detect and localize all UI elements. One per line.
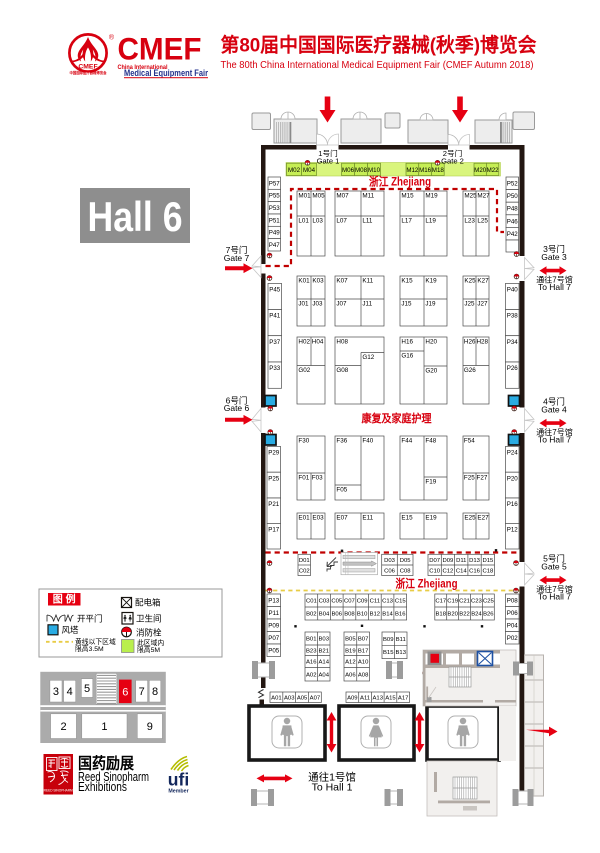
svg-text:B26: B26 — [483, 612, 494, 618]
svg-text:9: 9 — [147, 721, 153, 733]
svg-text:M15: M15 — [401, 192, 414, 199]
svg-text:2: 2 — [60, 721, 66, 733]
svg-text:P16: P16 — [507, 501, 519, 508]
svg-text:M20: M20 — [474, 167, 487, 174]
svg-text:E27: E27 — [477, 514, 489, 521]
svg-text:G16: G16 — [401, 352, 413, 359]
svg-text:配电箱: 配电箱 — [135, 598, 161, 608]
svg-text:C02: C02 — [299, 568, 310, 574]
svg-text:P38: P38 — [507, 313, 519, 320]
svg-text:M04: M04 — [303, 167, 316, 174]
svg-text:P04: P04 — [507, 622, 519, 629]
svg-text:B03: B03 — [319, 637, 330, 643]
svg-text:B12: B12 — [370, 612, 380, 618]
svg-text:F05: F05 — [336, 486, 347, 493]
svg-text:B04: B04 — [319, 612, 330, 618]
svg-text:K03: K03 — [312, 277, 324, 284]
svg-text:Member: Member — [168, 788, 188, 794]
svg-text:L11: L11 — [362, 217, 373, 224]
svg-text:F25: F25 — [464, 474, 475, 481]
svg-text:H04: H04 — [312, 338, 324, 345]
svg-text:H16: H16 — [401, 338, 413, 345]
svg-text:B22: B22 — [459, 612, 469, 618]
svg-text:4: 4 — [67, 686, 73, 698]
svg-text:K07: K07 — [336, 277, 348, 284]
svg-text:C16: C16 — [469, 568, 481, 574]
svg-text:浙江 Zhejiang: 浙江 Zhejiang — [369, 175, 431, 189]
svg-text:P12: P12 — [507, 527, 519, 534]
svg-text:To Hall 7: To Hall 7 — [538, 591, 571, 601]
svg-text:M06: M06 — [342, 167, 355, 174]
svg-text:B19: B19 — [345, 648, 355, 654]
svg-text:P52: P52 — [507, 181, 519, 188]
svg-text:P06: P06 — [507, 610, 519, 617]
svg-text:E11: E11 — [362, 514, 373, 521]
svg-text:M08: M08 — [355, 167, 368, 174]
svg-text:J19: J19 — [425, 300, 436, 307]
svg-text:Gate 7: Gate 7 — [224, 253, 250, 263]
svg-text:M05: M05 — [312, 192, 325, 199]
svg-text:P41: P41 — [269, 313, 281, 320]
svg-text:Gate 3: Gate 3 — [541, 252, 567, 262]
svg-text:Gate 6: Gate 6 — [224, 403, 250, 413]
svg-text:D09: D09 — [443, 558, 454, 564]
svg-text:C23: C23 — [471, 599, 483, 605]
svg-text:J07: J07 — [336, 300, 347, 307]
svg-text:J03: J03 — [312, 300, 323, 307]
svg-text:A05: A05 — [297, 695, 308, 701]
svg-text:C03: C03 — [319, 599, 331, 605]
svg-text:F44: F44 — [401, 437, 412, 444]
svg-text:CMEF: CMEF — [78, 64, 97, 71]
svg-text:5: 5 — [84, 683, 90, 695]
svg-text:图 例: 图 例 — [53, 593, 76, 606]
svg-text:REED SINOPHARM: REED SINOPHARM — [44, 788, 73, 792]
svg-text:A15: A15 — [385, 695, 396, 701]
svg-text:A08: A08 — [358, 672, 369, 678]
svg-text:C15: C15 — [395, 599, 407, 605]
svg-text:P11: P11 — [268, 610, 279, 617]
svg-text:H20: H20 — [425, 338, 437, 345]
svg-text:G26: G26 — [464, 367, 476, 374]
svg-text:A12: A12 — [345, 660, 355, 666]
svg-text:A06: A06 — [345, 672, 356, 678]
svg-text:J25: J25 — [464, 300, 475, 307]
svg-text:开平门: 开平门 — [77, 614, 103, 624]
svg-text:C01: C01 — [306, 599, 317, 605]
svg-text:J01: J01 — [298, 300, 309, 307]
svg-text:K25: K25 — [464, 277, 476, 284]
svg-text:L01: L01 — [298, 217, 309, 224]
svg-text:7: 7 — [139, 686, 145, 698]
svg-text:The 80th China International M: The 80th China International Medical Equ… — [221, 60, 534, 71]
svg-text:M12: M12 — [406, 167, 419, 174]
svg-text:B01: B01 — [306, 637, 316, 643]
svg-text:D01: D01 — [299, 558, 310, 564]
svg-text:C13: C13 — [382, 599, 394, 605]
svg-text:P08: P08 — [507, 597, 519, 604]
svg-text:M02: M02 — [288, 167, 301, 174]
svg-text:H28: H28 — [477, 338, 489, 345]
svg-text:P21: P21 — [268, 501, 280, 508]
svg-text:A04: A04 — [319, 672, 330, 678]
svg-text:A02: A02 — [306, 672, 316, 678]
svg-text:F30: F30 — [298, 437, 309, 444]
svg-text:A07: A07 — [310, 695, 320, 701]
svg-text:Gate 5: Gate 5 — [541, 561, 567, 571]
svg-text:B06: B06 — [332, 612, 343, 618]
svg-text:To Hall 1: To Hall 1 — [312, 781, 353, 793]
svg-text:L23: L23 — [464, 217, 475, 224]
svg-text:B02: B02 — [306, 612, 316, 618]
svg-text:C19: C19 — [447, 599, 458, 605]
svg-text:M18: M18 — [432, 167, 445, 174]
svg-text:B18: B18 — [436, 612, 447, 618]
svg-text:G02: G02 — [298, 367, 310, 374]
svg-text:B23: B23 — [306, 648, 317, 654]
svg-text:K19: K19 — [425, 277, 437, 284]
svg-text:A14: A14 — [319, 660, 330, 666]
svg-text:Gate 4: Gate 4 — [541, 404, 567, 414]
svg-text:E01: E01 — [298, 514, 310, 521]
svg-text:B10: B10 — [357, 612, 368, 618]
svg-text:B09: B09 — [383, 637, 393, 643]
svg-text:B13: B13 — [396, 650, 407, 656]
svg-text:A11: A11 — [360, 695, 370, 701]
svg-text:8: 8 — [152, 686, 158, 698]
svg-text:P09: P09 — [268, 622, 280, 629]
svg-text:B05: B05 — [345, 637, 356, 643]
svg-text:卫生间: 卫生间 — [136, 614, 162, 624]
svg-text:Gate 1: Gate 1 — [317, 156, 340, 165]
svg-text:B24: B24 — [471, 612, 482, 618]
svg-text:D03: D03 — [384, 558, 396, 564]
svg-text:P13: P13 — [268, 597, 280, 604]
svg-text:P45: P45 — [269, 287, 281, 294]
svg-text:B17: B17 — [358, 648, 368, 654]
svg-text:C21: C21 — [459, 599, 470, 605]
svg-text:B21: B21 — [319, 648, 329, 654]
svg-text:A01: A01 — [271, 695, 281, 701]
svg-text:To Hall 7: To Hall 7 — [538, 282, 571, 292]
svg-text:L03: L03 — [312, 217, 323, 224]
svg-text:A17: A17 — [398, 695, 408, 701]
svg-text:M27: M27 — [477, 192, 490, 199]
svg-text:J11: J11 — [362, 300, 372, 307]
svg-text:3: 3 — [53, 686, 59, 698]
svg-text:F40: F40 — [362, 437, 373, 444]
svg-text:M25: M25 — [464, 192, 477, 199]
svg-text:P49: P49 — [269, 230, 281, 237]
svg-text:P07: P07 — [268, 635, 280, 642]
svg-text:P26: P26 — [507, 365, 519, 372]
svg-text:F01: F01 — [298, 474, 309, 481]
svg-text:B15: B15 — [383, 650, 394, 656]
svg-text:L17: L17 — [401, 217, 412, 224]
svg-text:F54: F54 — [464, 437, 475, 444]
svg-text:C17: C17 — [435, 599, 446, 605]
svg-text:P20: P20 — [507, 475, 519, 482]
svg-text:第80届中国国际医疗器械(秋季)博览会: 第80届中国国际医疗器械(秋季)博览会 — [221, 34, 537, 57]
svg-text:M01: M01 — [298, 192, 311, 199]
svg-text:D05: D05 — [400, 558, 412, 564]
svg-text:M07: M07 — [336, 192, 349, 199]
svg-text:ufi: ufi — [168, 770, 189, 790]
svg-text:Medical Equipment Fair: Medical Equipment Fair — [124, 68, 208, 78]
svg-text:C06: C06 — [384, 568, 396, 574]
svg-text:P24: P24 — [507, 450, 519, 457]
svg-text:J15: J15 — [401, 300, 412, 307]
svg-text:D15: D15 — [482, 558, 494, 564]
svg-text:1: 1 — [101, 721, 107, 733]
svg-text:P47: P47 — [269, 242, 281, 249]
svg-text:C05: C05 — [331, 599, 343, 605]
svg-text:K15: K15 — [401, 277, 413, 284]
svg-text:消防栓: 消防栓 — [136, 628, 162, 638]
svg-text:CMEF: CMEF — [118, 31, 202, 67]
svg-text:A03: A03 — [284, 695, 295, 701]
svg-text:B20: B20 — [447, 612, 458, 618]
svg-text:P55: P55 — [269, 193, 281, 200]
svg-text:M10: M10 — [368, 167, 381, 174]
svg-text:E25: E25 — [464, 514, 476, 521]
svg-text:F19: F19 — [425, 478, 436, 485]
svg-text:E15: E15 — [401, 514, 413, 521]
svg-text:C12: C12 — [443, 568, 454, 574]
svg-text:G20: G20 — [425, 367, 437, 374]
svg-text:B16: B16 — [395, 612, 406, 618]
svg-text:F27: F27 — [477, 474, 488, 481]
svg-text:P51: P51 — [269, 217, 281, 224]
svg-text:P53: P53 — [269, 205, 281, 212]
svg-text:G08: G08 — [336, 367, 348, 374]
svg-text:F36: F36 — [336, 437, 347, 444]
svg-text:H02: H02 — [298, 338, 310, 345]
svg-text:6: 6 — [122, 686, 128, 698]
svg-text:K27: K27 — [477, 277, 489, 284]
svg-text:B14: B14 — [382, 612, 393, 618]
svg-text:M19: M19 — [425, 192, 438, 199]
svg-text:E07: E07 — [336, 514, 348, 521]
svg-text:C09: C09 — [357, 599, 368, 605]
svg-text:P57: P57 — [269, 180, 281, 187]
svg-text:F03: F03 — [312, 474, 323, 481]
svg-text:C25: C25 — [483, 599, 495, 605]
svg-text:P42: P42 — [507, 231, 519, 238]
svg-text:P02: P02 — [507, 635, 519, 642]
svg-text:D07: D07 — [429, 558, 440, 564]
svg-text:Gate 2: Gate 2 — [441, 156, 464, 165]
svg-text:L19: L19 — [425, 217, 436, 224]
svg-text:A10: A10 — [358, 660, 369, 666]
svg-text:C10: C10 — [429, 568, 441, 574]
svg-text:L25: L25 — [477, 217, 488, 224]
svg-text:To Hall 7: To Hall 7 — [538, 434, 571, 444]
svg-text:B08: B08 — [344, 612, 355, 618]
svg-text:P37: P37 — [269, 339, 281, 346]
svg-text:P50: P50 — [507, 193, 519, 200]
svg-text:P17: P17 — [268, 527, 280, 534]
svg-text:此区域内: 此区域内 — [137, 638, 164, 647]
svg-text:®: ® — [109, 34, 115, 42]
svg-text:黄线以下区域: 黄线以下区域 — [75, 637, 116, 646]
svg-text:P40: P40 — [507, 287, 519, 294]
svg-text:A09: A09 — [347, 695, 357, 701]
svg-text:H08: H08 — [336, 338, 348, 345]
svg-text:C07: C07 — [344, 599, 355, 605]
svg-text:H26: H26 — [464, 338, 476, 345]
svg-text:P34: P34 — [507, 339, 519, 346]
svg-text:风塔: 风塔 — [62, 625, 80, 635]
svg-text:A16: A16 — [306, 660, 317, 666]
svg-text:C18: C18 — [482, 568, 494, 574]
svg-text:M16: M16 — [419, 167, 432, 174]
svg-text:C14: C14 — [456, 568, 468, 574]
svg-text:B11: B11 — [396, 637, 406, 643]
svg-text:F48: F48 — [425, 437, 436, 444]
svg-text:E03: E03 — [312, 514, 324, 521]
svg-text:P29: P29 — [268, 450, 280, 457]
svg-text:C11: C11 — [370, 599, 380, 605]
svg-text:D13: D13 — [469, 558, 481, 564]
svg-text:Hall 6: Hall 6 — [88, 193, 183, 240]
svg-text:P48: P48 — [507, 206, 519, 213]
svg-text:C08: C08 — [400, 568, 412, 574]
svg-text:M11: M11 — [362, 192, 374, 199]
svg-text:Exhibitions: Exhibitions — [78, 779, 127, 794]
svg-text:K01: K01 — [298, 277, 310, 284]
svg-text:限高5M: 限高5M — [137, 645, 160, 654]
svg-text:B07: B07 — [358, 637, 368, 643]
svg-text:E19: E19 — [425, 514, 437, 521]
svg-text:P25: P25 — [268, 475, 280, 482]
svg-text:G12: G12 — [362, 354, 374, 361]
svg-text:中国国际医疗器械博览会: 中国国际医疗器械博览会 — [70, 70, 107, 75]
svg-text:P33: P33 — [269, 365, 281, 372]
svg-text:M22: M22 — [487, 167, 500, 174]
svg-text:P05: P05 — [268, 647, 280, 654]
svg-text:限高3.5M: 限高3.5M — [75, 644, 104, 653]
svg-text:L07: L07 — [336, 217, 347, 224]
svg-text:康复及家庭护理: 康复及家庭护理 — [362, 411, 432, 425]
svg-text:浙江 Zhejiang: 浙江 Zhejiang — [396, 577, 458, 591]
svg-text:K11: K11 — [362, 277, 373, 284]
svg-text:D11: D11 — [456, 558, 466, 564]
svg-text:P46: P46 — [507, 218, 519, 225]
svg-text:J27: J27 — [477, 300, 488, 307]
svg-text:A13: A13 — [373, 695, 384, 701]
